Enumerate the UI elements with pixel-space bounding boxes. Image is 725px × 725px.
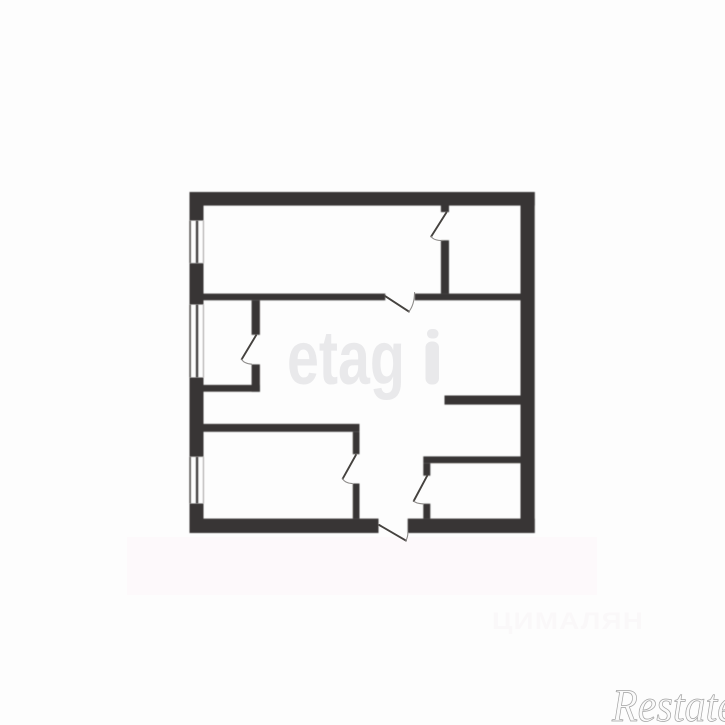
svg-text:ЦИМАЛЯН: ЦИМАЛЯН	[492, 608, 644, 635]
svg-text:Restate: Restate	[611, 680, 725, 725]
svg-text:etag: etag	[287, 316, 405, 401]
